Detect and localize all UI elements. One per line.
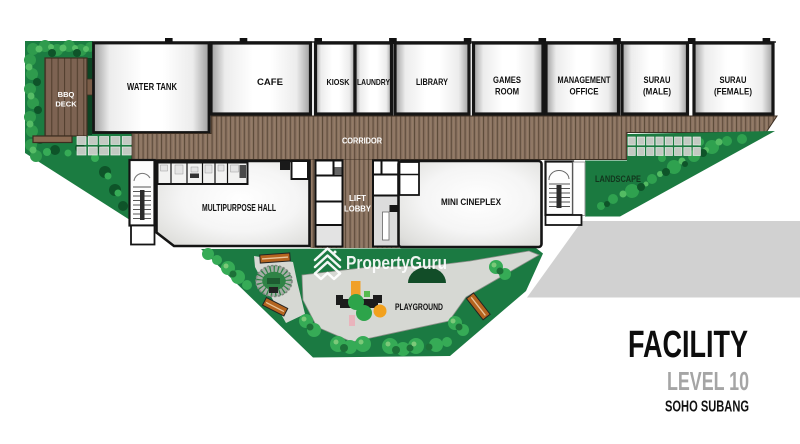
svg-text:LANDSCAPE: LANDSCAPE: [595, 174, 641, 184]
svg-text:LOBBY: LOBBY: [344, 204, 371, 214]
svg-text:BBQ: BBQ: [58, 90, 75, 99]
svg-text:OFFICE: OFFICE: [570, 87, 599, 98]
svg-text:CAFE: CAFE: [257, 77, 283, 88]
svg-text:WATER TANK: WATER TANK: [127, 82, 178, 93]
svg-text:PLAYGROUND: PLAYGROUND: [395, 302, 443, 313]
svg-text:ROOM: ROOM: [495, 87, 519, 98]
svg-text:(MALE): (MALE): [643, 87, 671, 98]
svg-text:LEVEL 10: LEVEL 10: [667, 366, 749, 396]
svg-text:DECK: DECK: [55, 100, 77, 109]
svg-text:PropertyGuru: PropertyGuru: [346, 253, 447, 273]
svg-text:GAMES: GAMES: [493, 75, 521, 86]
svg-text:LIBRARY: LIBRARY: [416, 77, 449, 88]
svg-text:SOHO SUBANG: SOHO SUBANG: [665, 399, 749, 416]
svg-text:MINI CINEPLEX: MINI CINEPLEX: [441, 197, 502, 208]
svg-text:MANAGEMENT: MANAGEMENT: [558, 75, 611, 86]
svg-text:KIOSK: KIOSK: [327, 77, 351, 87]
svg-text:LAUNDRY: LAUNDRY: [357, 77, 390, 87]
svg-text:LIFT: LIFT: [349, 193, 367, 203]
svg-text:CORRIDOR: CORRIDOR: [342, 137, 382, 146]
svg-text:SURAU: SURAU: [644, 75, 671, 86]
svg-text:FACILITY: FACILITY: [628, 324, 748, 366]
svg-text:SURAU: SURAU: [720, 75, 747, 86]
svg-text:(FEMALE): (FEMALE): [714, 87, 752, 98]
svg-text:MULTIPURPOSE HALL: MULTIPURPOSE HALL: [202, 203, 276, 214]
